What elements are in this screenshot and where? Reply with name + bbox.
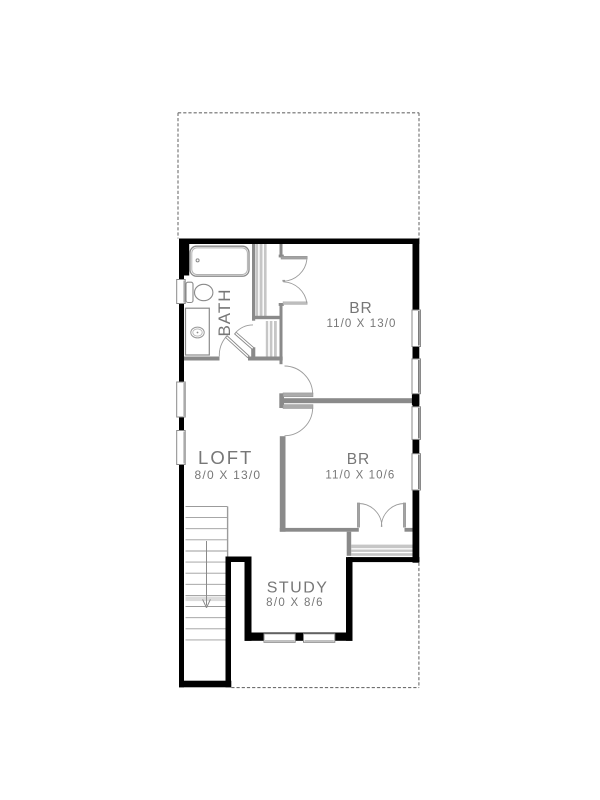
svg-text:LOFT: LOFT: [198, 447, 253, 468]
svg-text:BR: BR: [347, 451, 371, 468]
svg-text:11/0 X 13/0: 11/0 X 13/0: [326, 318, 396, 330]
svg-text:8/0 X 13/0: 8/0 X 13/0: [195, 468, 262, 482]
svg-text:11/0 X 10/6: 11/0 X 10/6: [325, 470, 395, 482]
svg-text:BR: BR: [349, 300, 373, 317]
svg-text:8/0 X 8/6: 8/0 X 8/6: [266, 597, 324, 609]
svg-text:BATH: BATH: [215, 288, 234, 336]
svg-text:STUDY: STUDY: [267, 580, 329, 597]
